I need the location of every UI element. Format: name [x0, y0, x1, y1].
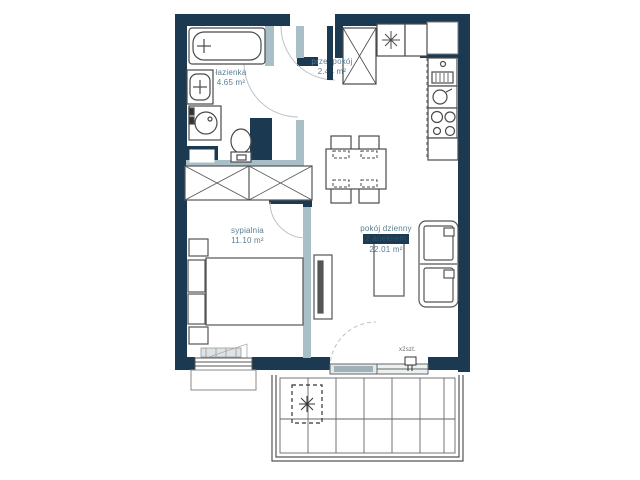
bedroom-window-assembly — [191, 344, 256, 390]
pillow — [188, 260, 205, 292]
balcony-door-arc — [330, 322, 376, 368]
floor-plan-drawing — [0, 0, 640, 480]
partition-bathroom-upper — [296, 26, 304, 58]
toilet — [231, 129, 251, 162]
wall-bottom-b — [252, 357, 330, 370]
bedroom-furniture — [185, 166, 312, 344]
cooktop — [428, 108, 457, 138]
wall-bottom-c — [428, 357, 470, 370]
kitchen-niche — [427, 22, 458, 54]
partition-bedroom-living — [303, 207, 311, 358]
dining-set — [326, 136, 386, 203]
sofa — [419, 221, 458, 307]
bathroom-door-arc — [244, 63, 298, 117]
pillow — [188, 294, 205, 324]
ac-asterisk-icon — [299, 396, 315, 412]
nightstand — [189, 239, 208, 256]
balcony-railing-outer — [272, 375, 463, 461]
kitchen-counter-bottom — [428, 138, 458, 160]
entrance-jamb — [335, 26, 343, 58]
double-bed — [188, 258, 303, 325]
refrigerator — [428, 58, 457, 86]
partition-bathtub-end — [265, 26, 274, 66]
air-conditioner-unit — [292, 385, 322, 423]
wall-right — [458, 14, 470, 372]
kitchen-counter-top — [405, 24, 427, 56]
bedroom-door-arc — [270, 202, 306, 238]
floor-plan: łazienka 4.65 m² przedpokój 2.44 m² sypi… — [0, 0, 640, 480]
bedroom-window — [195, 358, 252, 370]
wall-top-left — [175, 14, 290, 26]
plumbing-shaft — [250, 118, 272, 162]
side-table — [374, 242, 404, 296]
balcony — [272, 375, 463, 461]
partition-bathroom-lower — [296, 120, 304, 167]
balcony-tiles — [280, 378, 455, 453]
kitchen-sink-counter — [377, 24, 405, 56]
bathtub — [189, 28, 265, 64]
balcony-railing-inner — [276, 375, 459, 457]
kitchen-sink-unit — [428, 86, 457, 108]
tv-icon — [318, 261, 323, 313]
bathroom-door-leaf — [297, 57, 318, 66]
hallway-wardrobe — [343, 28, 376, 84]
washing-machine — [189, 106, 221, 140]
entrance-door-leaf — [327, 26, 333, 80]
wall-bottom-a — [175, 357, 195, 370]
living-room-furniture — [314, 221, 458, 319]
nightstand — [189, 327, 208, 344]
window-sill-exterior — [191, 370, 256, 390]
bedroom-wardrobe — [185, 166, 312, 200]
bathroom-niche — [190, 150, 214, 162]
socket-icon — [405, 357, 416, 365]
washbasin — [187, 70, 213, 104]
socket-count-note: x2szt. — [399, 347, 416, 353]
tv-cabinet — [314, 255, 332, 319]
